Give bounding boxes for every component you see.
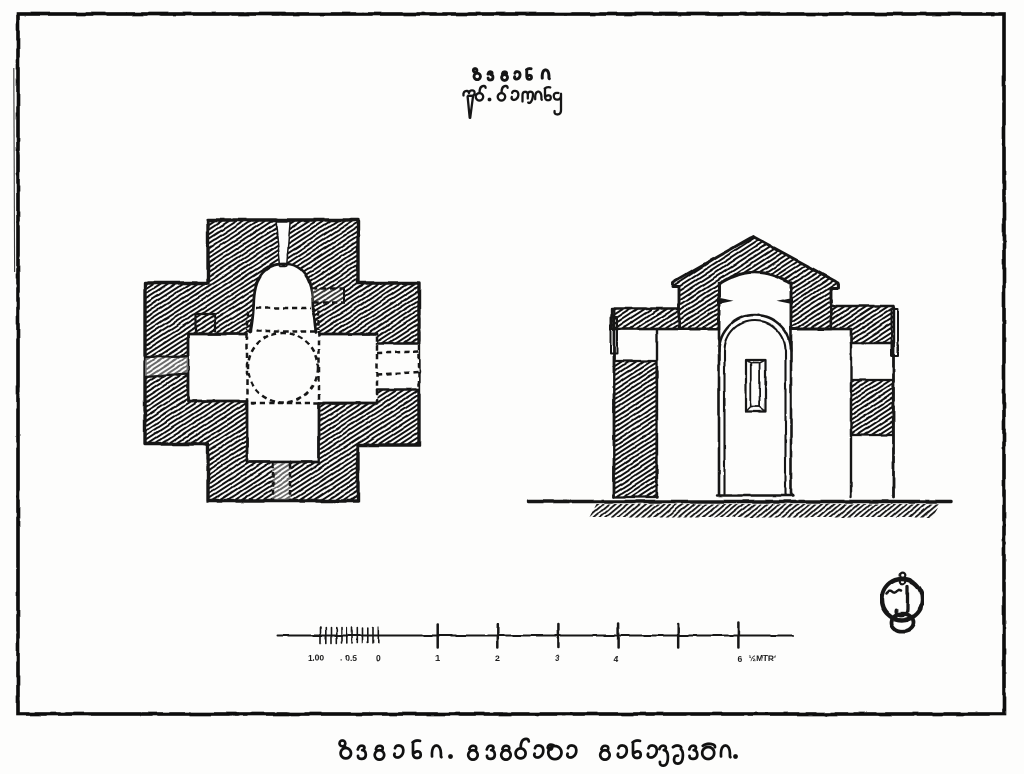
svg-text:0: 0 — [376, 653, 381, 663]
svg-text:2: 2 — [495, 653, 500, 663]
svg-text:1: 1 — [435, 653, 440, 663]
svg-text:. 0.5: . 0.5 — [340, 653, 357, 663]
svg-text:½MTRʹ: ½MTRʹ — [749, 653, 777, 663]
svg-text:3: 3 — [555, 653, 560, 663]
svg-text:4: 4 — [614, 654, 619, 664]
svg-text:6: 6 — [737, 654, 742, 664]
svg-text:1.00: 1.00 — [308, 653, 325, 663]
